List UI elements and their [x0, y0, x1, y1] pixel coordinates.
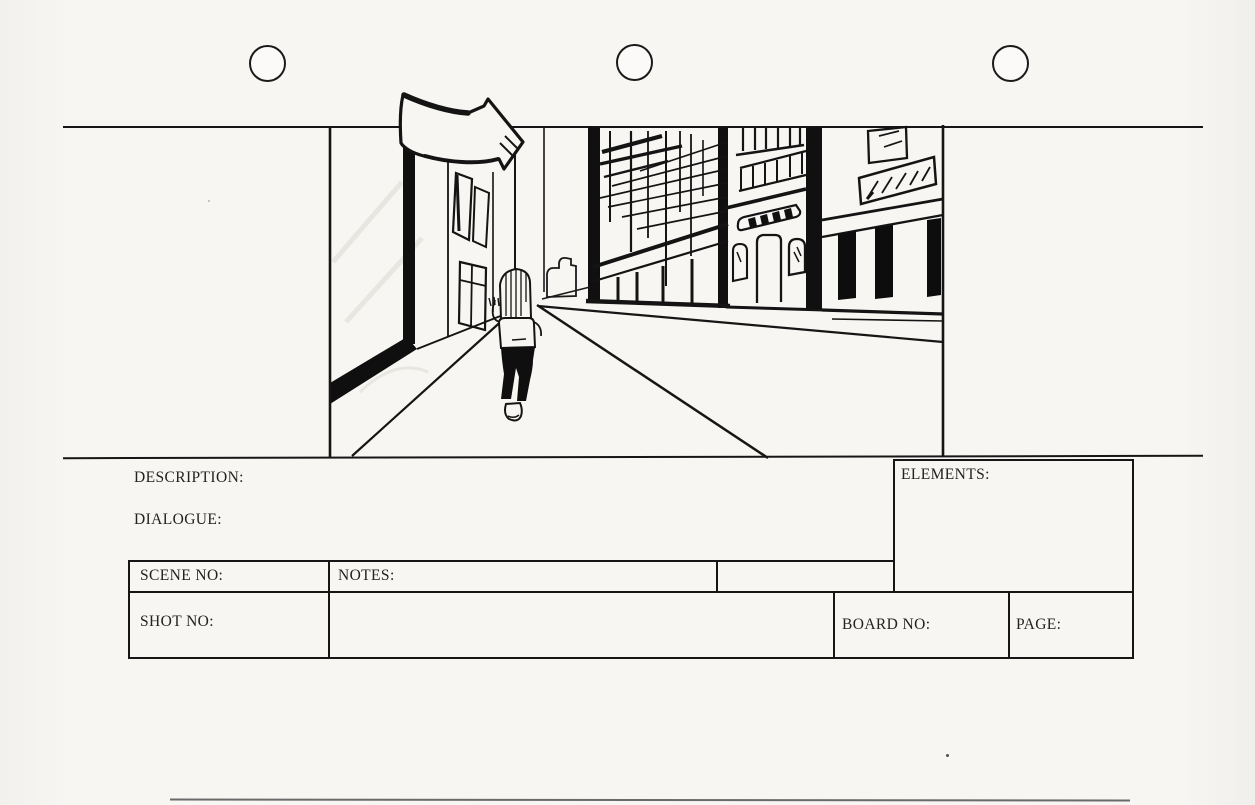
board-no-label: BOARD NO:	[842, 616, 930, 634]
dialogue-value	[235, 511, 870, 541]
shot-no-value	[230, 613, 323, 633]
middle-building	[726, 127, 824, 310]
punch-hole-right	[992, 45, 1029, 82]
board-no-value	[945, 616, 1003, 636]
shirt	[499, 318, 535, 348]
sidewalk-edge	[352, 317, 506, 456]
scene-no-label: SCENE NO:	[140, 567, 223, 585]
pants	[501, 347, 535, 401]
table-left-edge	[128, 560, 130, 659]
page-label: PAGE:	[1016, 616, 1061, 634]
scene-no-value	[235, 567, 323, 587]
door	[757, 235, 781, 303]
building-corner	[403, 131, 415, 344]
shot-no-label: SHOT NO:	[140, 613, 214, 631]
board-no-divider	[833, 591, 835, 659]
punch-hole-center	[616, 44, 653, 81]
right-buildings	[537, 127, 943, 458]
elements-box-left	[893, 459, 895, 593]
page-value	[1068, 616, 1126, 636]
notes-label: NOTES:	[338, 567, 395, 585]
table-row1-top	[128, 560, 895, 562]
notes-value	[405, 567, 710, 587]
dialogue-label: DIALOGUE:	[134, 511, 222, 529]
paper-speck	[208, 200, 210, 202]
description-value	[250, 469, 870, 499]
storyboard-sketch	[320, 88, 953, 460]
table-bottom	[128, 657, 1134, 659]
left-building	[330, 131, 515, 456]
distant-buildings	[542, 258, 590, 299]
description-label: DESCRIPTION:	[134, 469, 244, 487]
paper-speck	[946, 754, 949, 757]
walking-figure	[489, 269, 541, 420]
curved-arrow-icon	[400, 95, 523, 169]
row1-small-cell-divider	[716, 560, 718, 593]
table-right-edge	[1132, 459, 1134, 659]
road-edge	[537, 305, 768, 458]
elements-value	[901, 486, 1121, 586]
scan-edge-line	[170, 798, 1130, 801]
table-row1-bottom	[128, 591, 1134, 593]
street-lines	[537, 305, 943, 458]
storyboard-sheet: DESCRIPTION: DIALOGUE: ELEMENTS: SCENE N…	[0, 0, 1255, 805]
elements-box-top	[893, 459, 1134, 461]
page-divider	[1008, 591, 1010, 659]
punch-hole-left	[249, 45, 286, 82]
scene-notes-divider	[328, 560, 330, 659]
glass-building	[586, 127, 730, 308]
striped-storefront-building	[822, 127, 943, 321]
elements-label: ELEMENTS:	[901, 466, 990, 484]
